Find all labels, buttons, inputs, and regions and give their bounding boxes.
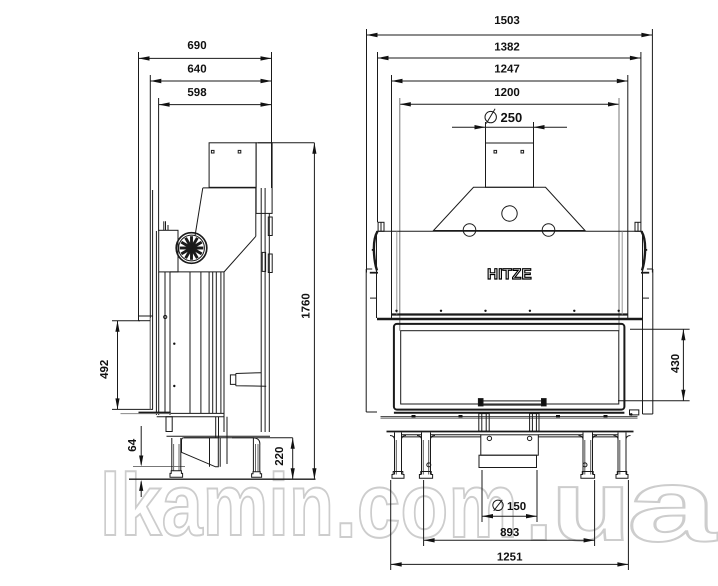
svg-text:220: 220 (274, 447, 286, 466)
svg-text:430: 430 (670, 354, 682, 373)
svg-text:598: 598 (187, 87, 207, 99)
svg-text:893: 893 (500, 527, 519, 539)
svg-text:HITZE: HITZE (487, 266, 532, 283)
svg-text:150: 150 (507, 501, 526, 513)
svg-text:640: 640 (187, 64, 206, 76)
svg-text:1760: 1760 (300, 293, 312, 319)
svg-text:1247: 1247 (494, 64, 520, 76)
svg-text:a: a (627, 448, 718, 564)
svg-text:250: 250 (501, 110, 523, 125)
svg-text:690: 690 (187, 40, 206, 52)
svg-text:1503: 1503 (494, 15, 520, 27)
svg-text:.com: .com (335, 455, 518, 557)
svg-text:1382: 1382 (494, 42, 520, 54)
svg-text:492: 492 (99, 360, 111, 379)
svg-text:1251: 1251 (497, 551, 523, 563)
svg-text:.: . (525, 450, 553, 562)
svg-text:64: 64 (127, 438, 139, 451)
svg-text:1200: 1200 (494, 87, 520, 99)
svg-text:lkamin: lkamin (100, 455, 334, 554)
